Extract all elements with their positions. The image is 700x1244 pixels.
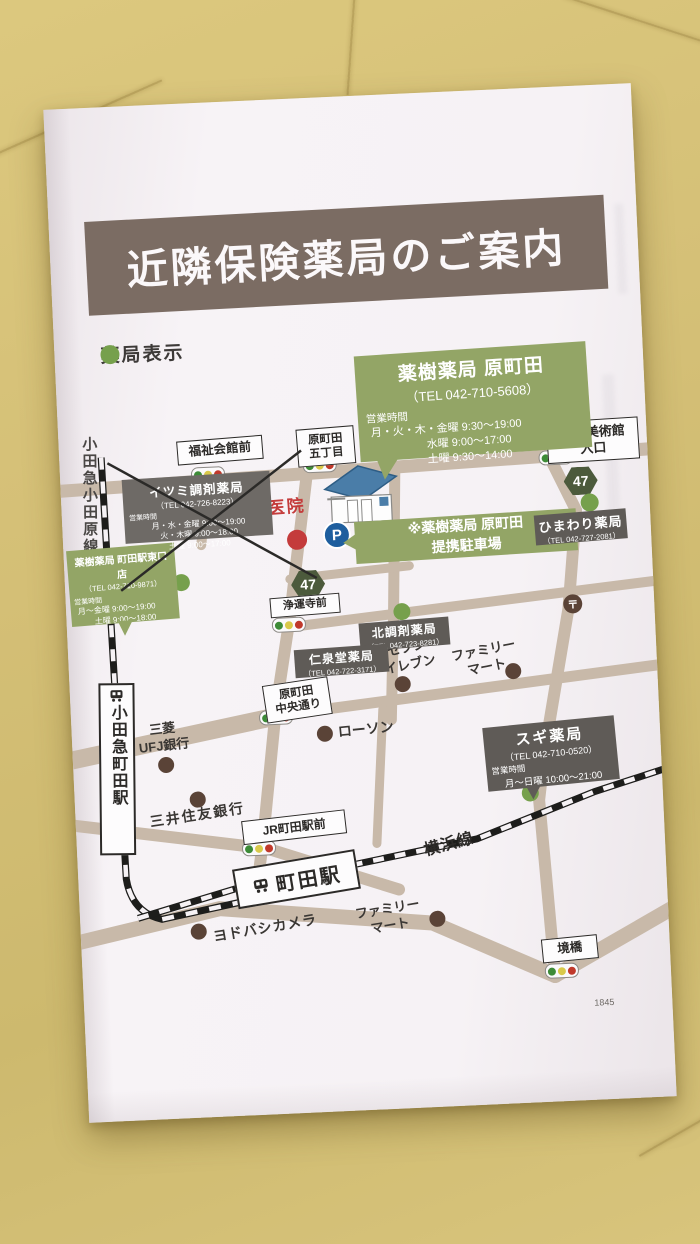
page-number: 1845 xyxy=(594,997,614,1008)
yakuju-higashiguchi-info-box: 薬樹薬局 町田駅東口店 （TEL 042-710-9871） 営業時間 月～金曜… xyxy=(66,543,180,627)
traffic-light-icon xyxy=(272,616,307,633)
odakyu-odawara-line-label: 小田急小田原線 xyxy=(78,436,100,555)
mitsubishi-ufj-label: 三菱 UFJ銀行 xyxy=(136,718,190,757)
flyer-paper: 近隣保険薬局のご案内 薬局表示 小田急小田原線 小田急町田駅 町田駅 横浜線 福… xyxy=(43,83,676,1123)
leather-seam xyxy=(347,0,356,95)
traffic-light-icon xyxy=(545,962,580,979)
sugi-pharmacy-info-box: スギ薬局 （TEL 042-710-0520） 営業時間 月～日曜 10:00～… xyxy=(482,715,620,792)
odakyu-machida-station-label: 小田急町田駅 xyxy=(105,704,130,806)
jinsendo-pharmacy-info-box: 仁泉堂薬局 （TEL 042-722-3171） xyxy=(294,644,390,679)
yakuju-haramachida-info-box: 薬樹薬局 原町田 （TEL 042-710-5608） 営業時間 月・火・木・金… xyxy=(354,341,593,462)
himawari-pharmacy-info-box: ひまわり薬局 （TEL 042-727-2081） xyxy=(534,508,628,545)
train-icon xyxy=(251,876,271,894)
train-icon xyxy=(108,689,124,702)
sign-haramachida-5chome: 原町田 五丁目 xyxy=(295,425,356,468)
machida-station-label: 町田駅 xyxy=(273,857,343,897)
odakyu-machida-station-sign: 小田急町田駅 xyxy=(98,683,136,855)
photo-of-pharmacy-map-flyer: { "title": "近隣保険薬局のご案内", "legend_label":… xyxy=(0,0,700,1244)
itsumi-pharmacy-info-box: イツミ調剤薬局 （TEL 042-726-8223） 営業時間 月・水・金曜 9… xyxy=(122,471,274,544)
leather-seam xyxy=(564,0,700,47)
